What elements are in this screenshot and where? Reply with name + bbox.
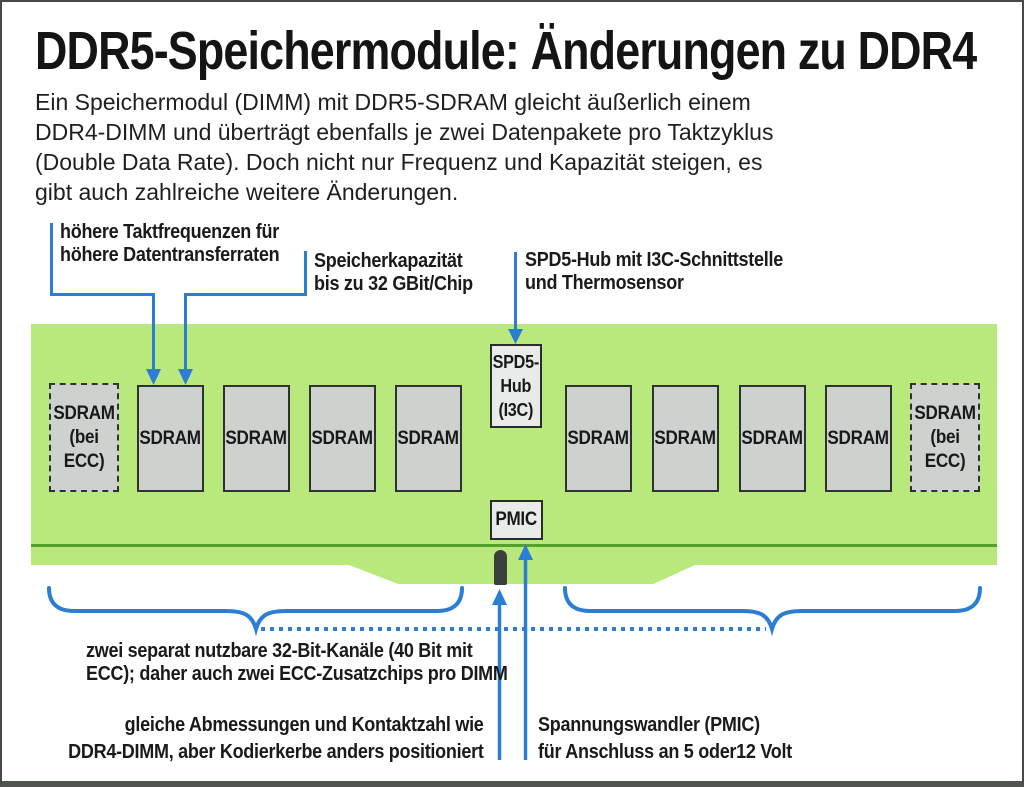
chip-label: SDRAM bbox=[742, 427, 803, 451]
chip-label: (bei bbox=[914, 426, 975, 450]
callout-line: ECC); daher auch zwei ECC-Zusatzchips pr… bbox=[86, 663, 446, 686]
chip-label: ECC) bbox=[914, 450, 975, 474]
chip-label: Hub bbox=[493, 374, 539, 398]
chip-label: SDRAM bbox=[312, 427, 373, 451]
chip-label: SDRAM bbox=[53, 402, 114, 426]
right-channel-brace bbox=[565, 588, 980, 629]
callout-line: höhere Taktfrequenzen für bbox=[60, 221, 279, 244]
callout-line: Spannungswandler (PMIC) bbox=[538, 712, 792, 739]
intro-line: DDR4-DIMM und überträgt ebenfalls je zwe… bbox=[35, 117, 773, 147]
callout-line: Speicherkapazität bbox=[314, 250, 473, 273]
intro-line: (Double Data Rate). Doch nicht nur Frequ… bbox=[35, 147, 773, 177]
contact-edge-strip bbox=[31, 547, 997, 565]
sdram-chip: SDRAM bbox=[309, 385, 376, 492]
chip-label: SDRAM bbox=[655, 427, 716, 451]
callout-line: DDR4-DIMM, aber Kodierkerbe anders posit… bbox=[69, 739, 484, 766]
sdram-chip: SDRAM bbox=[565, 385, 632, 492]
left-channel-brace bbox=[49, 588, 462, 629]
pmic-chip: PMIC bbox=[490, 500, 543, 540]
sdram-chip: SDRAM bbox=[395, 385, 462, 492]
key-notch bbox=[494, 550, 507, 585]
page-title: DDR5-Speichermodule: Änderungen zu DDR4 bbox=[35, 20, 976, 82]
callout-line: SPD5-Hub mit I3C-Schnittstelle bbox=[525, 249, 783, 272]
sdram-chip: SDRAM bbox=[137, 385, 204, 492]
chip-label: (I3C) bbox=[493, 398, 539, 422]
channels-callout-label: zwei separat nutzbare 32-Bit-Kanäle (40 … bbox=[86, 640, 446, 686]
clock-callout-label: höhere Taktfrequenzen für höhere Datentr… bbox=[60, 221, 279, 267]
chip-label: (bei bbox=[53, 426, 114, 450]
callout-line: höhere Datentransferraten bbox=[60, 244, 279, 267]
chip-label: PMIC bbox=[496, 508, 538, 532]
callout-line: bis zu 32 GBit/Chip bbox=[314, 273, 473, 296]
arrowhead-icon bbox=[492, 589, 507, 605]
chip-label: SPD5- bbox=[493, 350, 539, 374]
sdram-chip: SDRAM bbox=[652, 385, 719, 492]
callout-line: zwei separat nutzbare 32-Bit-Kanäle (40 … bbox=[86, 640, 446, 663]
chip-label: SDRAM bbox=[398, 427, 459, 451]
sdram-chip: SDRAM bbox=[825, 385, 892, 492]
spd5-callout-label: SPD5-Hub mit I3C-Schnittstelle und Therm… bbox=[525, 249, 783, 295]
capacity-callout-label: Speicherkapazität bis zu 32 GBit/Chip bbox=[314, 250, 473, 296]
ddr5-infographic: DDR5-Speichermodule: Änderungen zu DDR4 … bbox=[0, 0, 1024, 787]
intro-line: Ein Speichermodul (DIMM) mit DDR5-SDRAM … bbox=[35, 87, 773, 117]
spd5-hub-chip: SPD5- Hub (I3C) bbox=[490, 344, 542, 428]
sdram-chip: SDRAM bbox=[223, 385, 290, 492]
chip-label: SDRAM bbox=[914, 402, 975, 426]
sdram-chip: SDRAM bbox=[739, 385, 806, 492]
chip-label: SDRAM bbox=[226, 427, 287, 451]
callout-line: für Anschluss an 5 oder12 Volt bbox=[538, 739, 792, 766]
callout-line: und Thermosensor bbox=[525, 272, 783, 295]
chip-label: ECC) bbox=[53, 450, 114, 474]
chip-label: SDRAM bbox=[828, 427, 889, 451]
chip-label: SDRAM bbox=[140, 427, 201, 451]
dimensions-callout-label: gleiche Abmessungen und Kontaktzahl wie … bbox=[69, 712, 484, 766]
pmic-callout-label: Spannungswandler (PMIC) für Anschluss an… bbox=[538, 712, 792, 766]
callout-line: gleiche Abmessungen und Kontaktzahl wie bbox=[69, 712, 484, 739]
chip-label: SDRAM bbox=[568, 427, 629, 451]
ecc-sdram-chip-right: SDRAM (bei ECC) bbox=[910, 383, 980, 492]
contact-edge-center bbox=[349, 565, 695, 584]
ecc-sdram-chip-left: SDRAM (bei ECC) bbox=[49, 383, 119, 492]
intro-paragraph: Ein Speichermodul (DIMM) mit DDR5-SDRAM … bbox=[35, 87, 773, 207]
intro-line: gibt auch zahlreiche weitere Änderungen. bbox=[35, 177, 773, 207]
